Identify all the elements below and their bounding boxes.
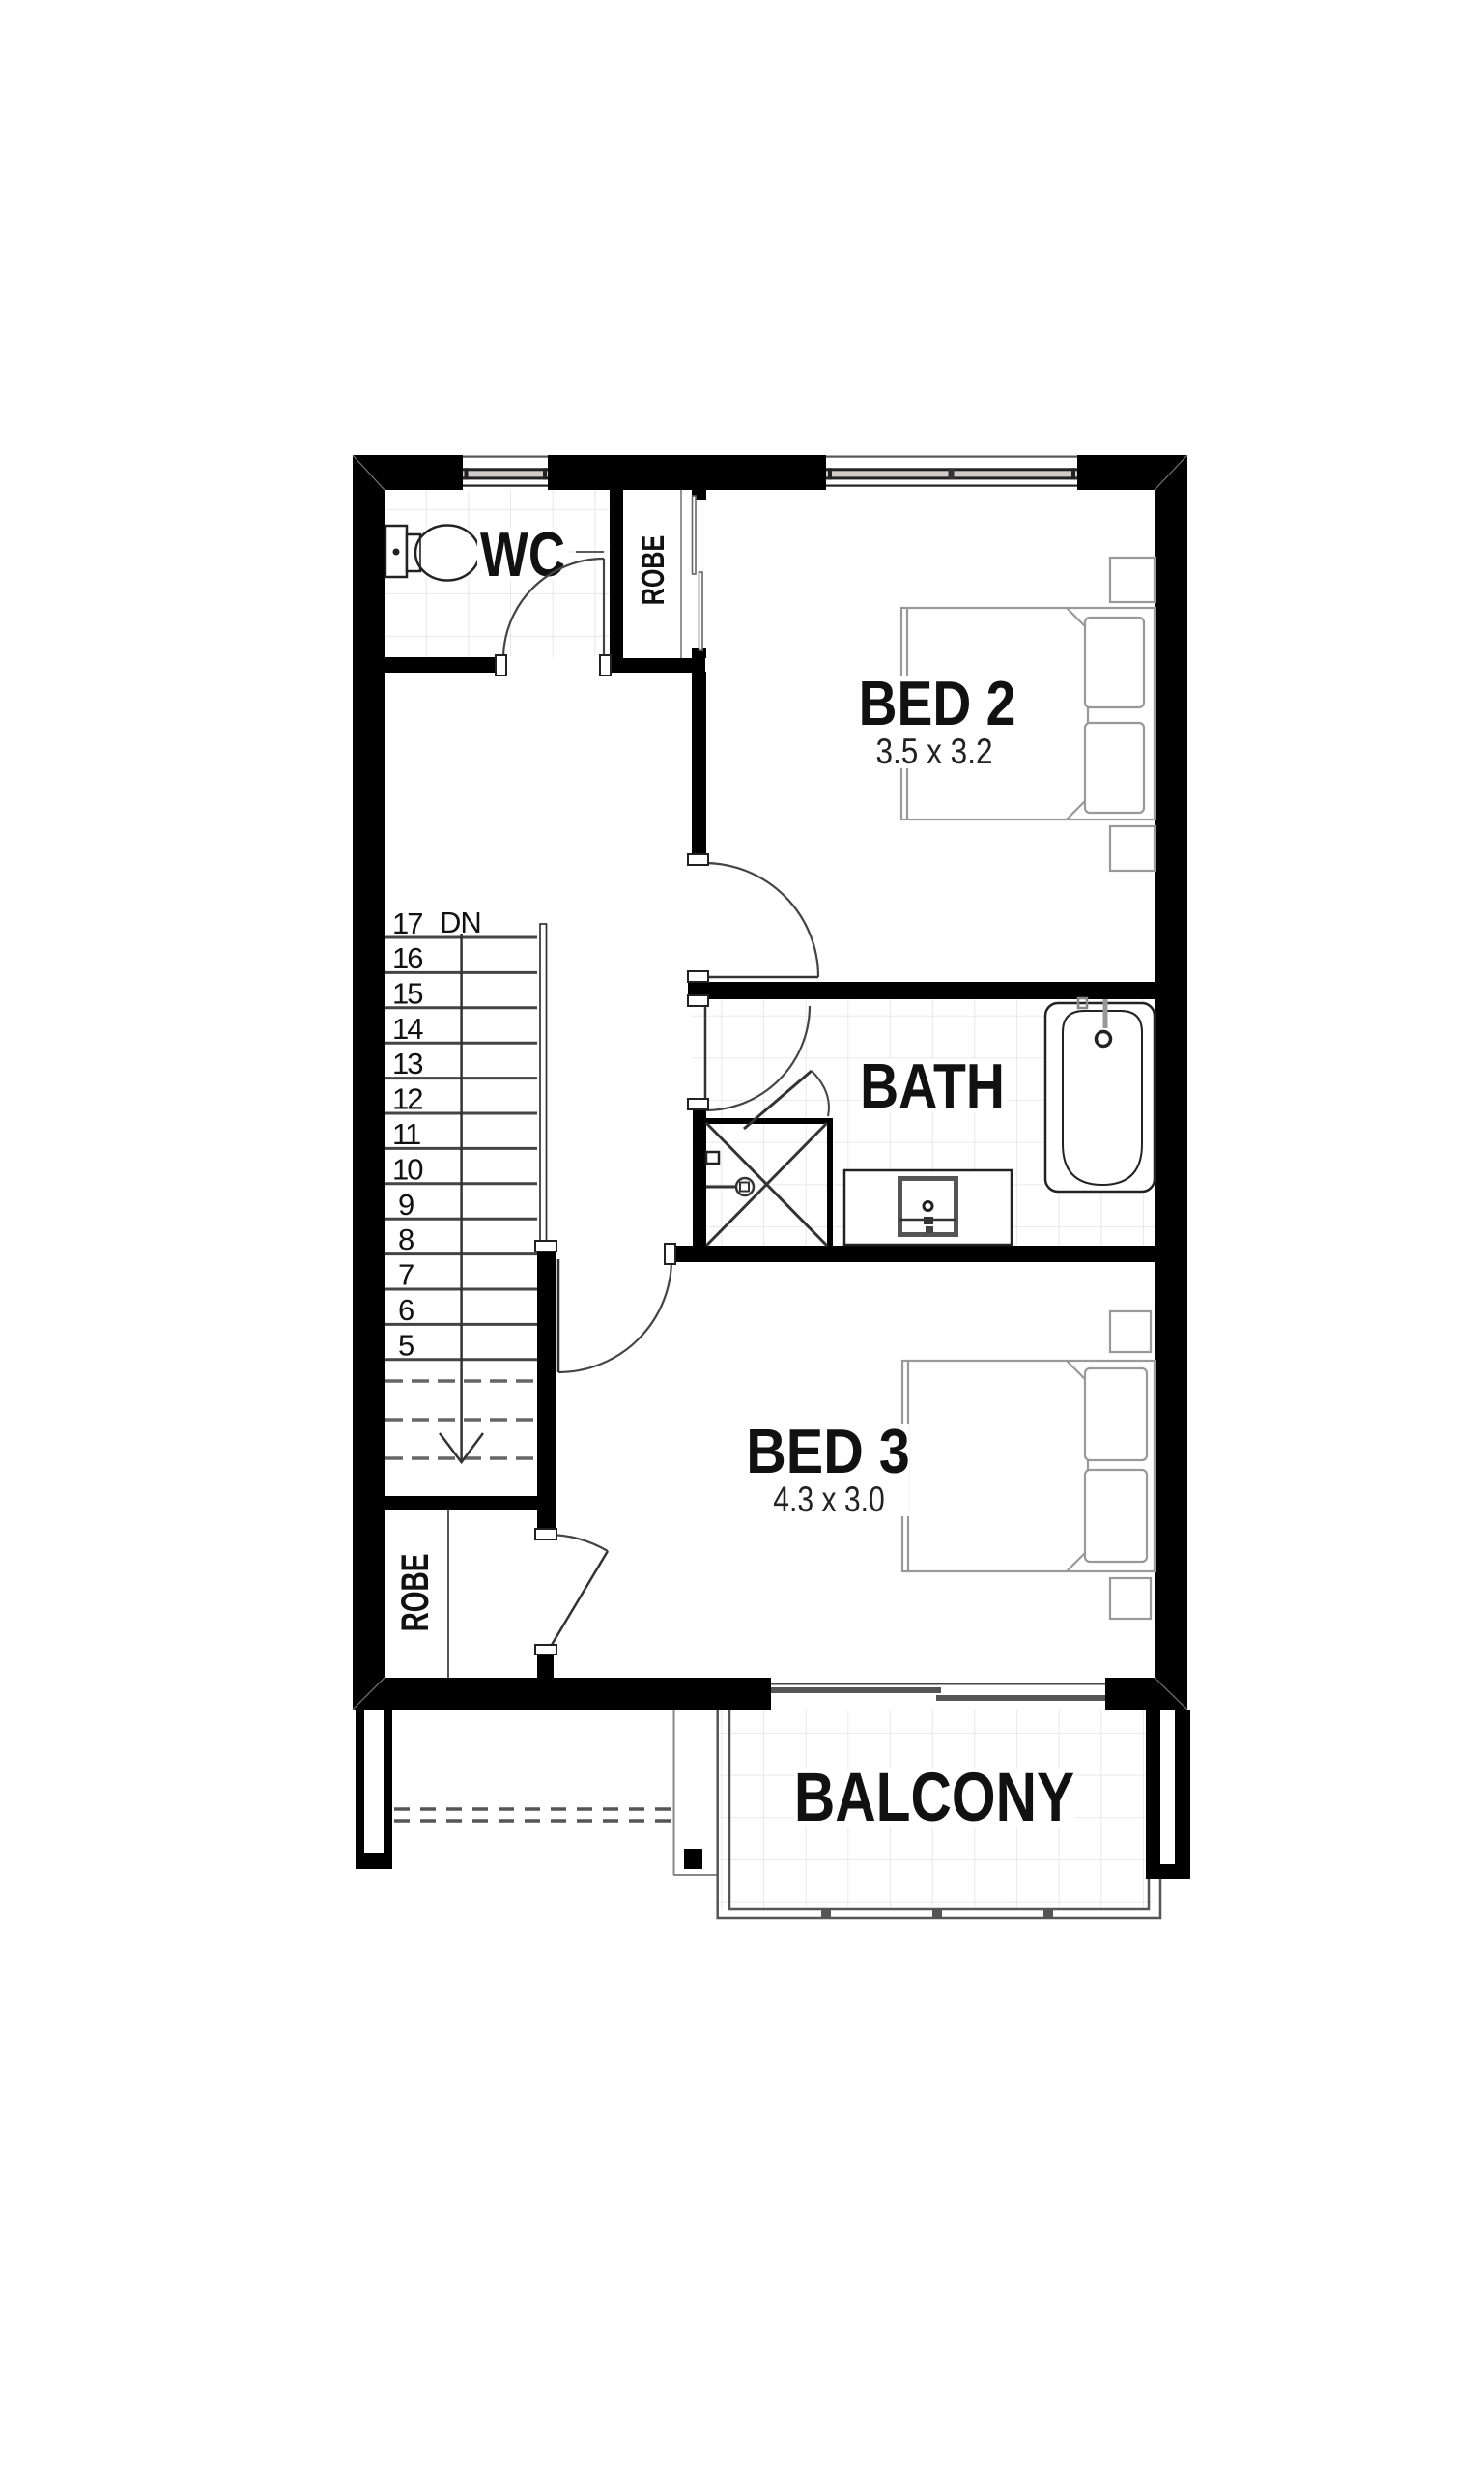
svg-text:17: 17 (392, 906, 422, 940)
svg-text:ROBE: ROBE (636, 535, 671, 606)
svg-text:6: 6 (398, 1293, 414, 1327)
svg-text:4.3 x 3.0: 4.3 x 3.0 (773, 1480, 884, 1520)
svg-text:10: 10 (392, 1152, 423, 1186)
svg-text:BED 2: BED 2 (859, 668, 1016, 738)
svg-text:BATH: BATH (860, 1050, 1005, 1121)
svg-text:12: 12 (392, 1082, 422, 1116)
svg-text:3.5 x 3.2: 3.5 x 3.2 (875, 733, 992, 772)
svg-text:BALCONY: BALCONY (794, 1759, 1074, 1836)
svg-text:16: 16 (392, 941, 422, 975)
svg-text:DN: DN (440, 906, 481, 939)
svg-text:13: 13 (392, 1047, 422, 1080)
svg-text:ROBE: ROBE (394, 1554, 437, 1632)
svg-text:15: 15 (392, 976, 422, 1010)
svg-text:5: 5 (398, 1328, 414, 1362)
svg-text:9: 9 (398, 1188, 414, 1222)
svg-text:14: 14 (392, 1012, 423, 1046)
svg-text:11: 11 (392, 1117, 420, 1151)
svg-text:7: 7 (398, 1258, 414, 1292)
svg-text:8: 8 (398, 1223, 414, 1256)
svg-text:BED 3: BED 3 (746, 1417, 910, 1487)
svg-text:WC: WC (480, 519, 565, 590)
